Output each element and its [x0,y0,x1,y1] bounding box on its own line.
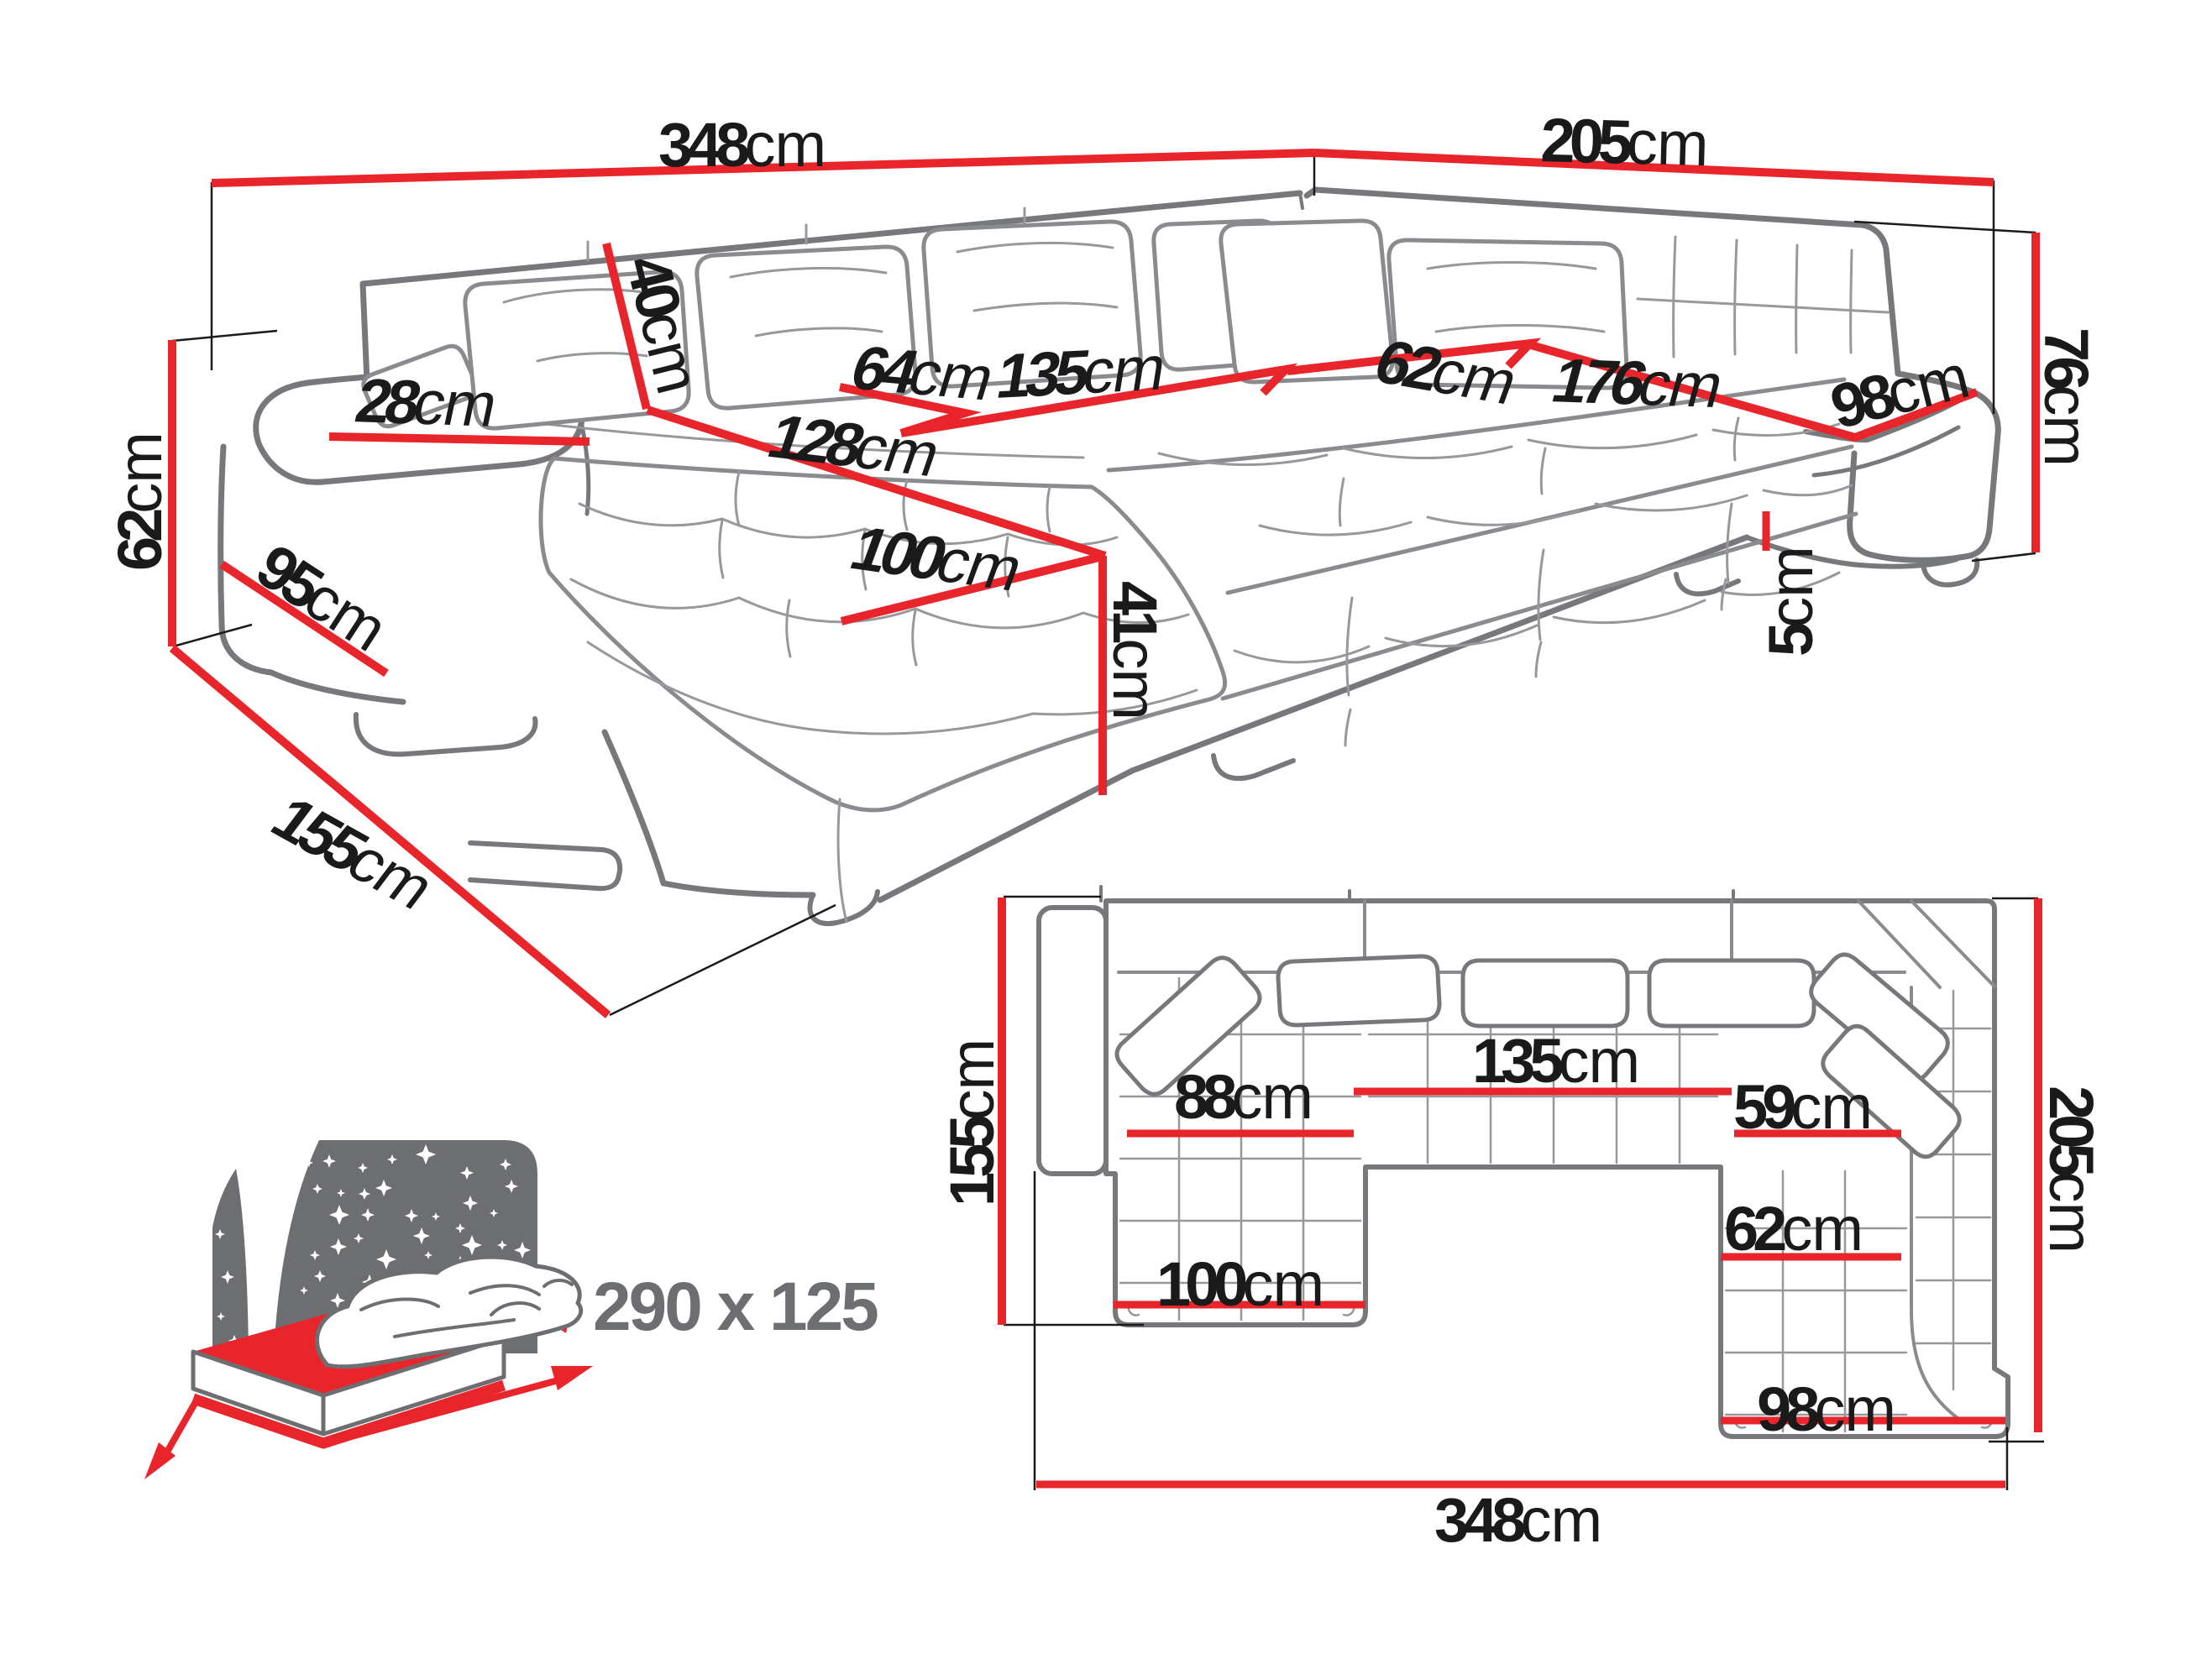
svg-text:100cm: 100cm [1156,1249,1324,1319]
svg-text:62cm: 62cm [1724,1194,1863,1264]
svg-text:135cm: 135cm [1472,1026,1639,1096]
svg-text:290 x 125: 290 x 125 [593,1269,878,1345]
svg-text:88cm: 88cm [1174,1062,1313,1132]
svg-text:348cm: 348cm [658,110,826,180]
svg-text:76cm: 76cm [2031,327,2101,466]
svg-text:28cm: 28cm [350,365,503,440]
svg-text:205cm: 205cm [1540,105,1709,179]
svg-text:176cm: 176cm [1545,345,1731,420]
svg-text:41cm: 41cm [1100,581,1170,720]
svg-text:5cm: 5cm [1756,547,1826,657]
svg-text:135cm: 135cm [992,332,1170,411]
svg-text:64cm: 64cm [843,332,1002,413]
svg-text:348cm: 348cm [1434,1485,1601,1555]
svg-text:205cm: 205cm [2036,1086,2106,1253]
svg-text:59cm: 59cm [1733,1072,1872,1142]
svg-text:98cm: 98cm [1757,1374,1895,1444]
svg-text:155cm: 155cm [937,1039,1007,1206]
svg-text:62cm: 62cm [105,432,175,571]
